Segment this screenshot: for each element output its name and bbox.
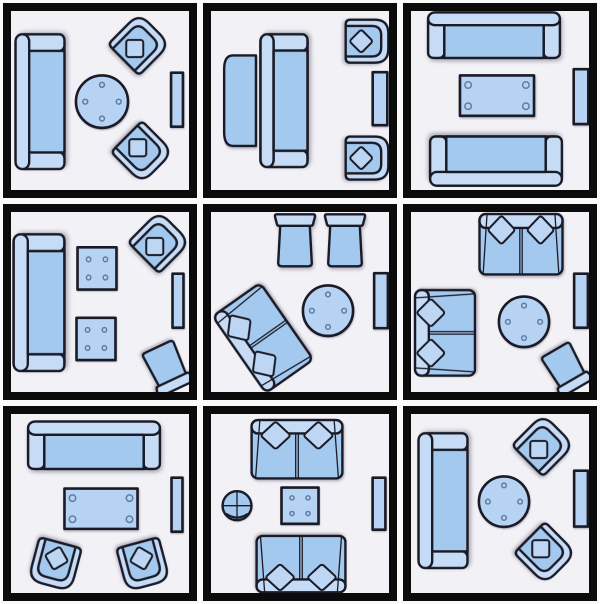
roundtable (303, 286, 353, 337)
room-cell-5 (203, 204, 397, 399)
loveseat (213, 283, 314, 391)
sqtable (281, 487, 318, 523)
sidetable (374, 274, 388, 329)
sofa (16, 34, 65, 169)
room-5-layout (211, 212, 389, 391)
room-cell-6 (403, 204, 597, 399)
room-5-floor (211, 212, 389, 391)
roundtable (76, 75, 128, 127)
armchair (346, 20, 389, 63)
room-cell-1 (3, 3, 197, 198)
sofa (428, 12, 560, 57)
room-2-layout (211, 11, 389, 190)
room-2-floor (211, 11, 389, 190)
sofa (28, 421, 160, 468)
room-7-floor (11, 414, 189, 593)
loveseat (480, 214, 563, 274)
armchair (128, 212, 189, 273)
room-3-layout (411, 11, 589, 190)
sidetable (172, 477, 183, 531)
recttable (460, 75, 534, 115)
sofa (430, 136, 562, 185)
room-3-floor (411, 11, 589, 190)
room-1-layout (11, 11, 189, 190)
room-cell-9 (403, 406, 597, 601)
loveseat (257, 536, 346, 592)
room-1-floor (11, 11, 189, 190)
sidetable (574, 470, 588, 526)
pouf (223, 491, 252, 520)
sidetable (173, 274, 184, 328)
chair (275, 215, 315, 267)
console (224, 55, 256, 145)
loveseat (252, 420, 343, 478)
sofa (14, 235, 65, 372)
room-6-floor (411, 212, 589, 391)
room-cell-8 (203, 406, 397, 601)
sqtable (77, 318, 116, 360)
armchair (111, 121, 173, 183)
room-4-layout (11, 212, 189, 391)
roundtable (499, 297, 549, 348)
chair (325, 215, 365, 267)
room-cell-7 (3, 406, 197, 601)
room-6-layout (411, 212, 589, 391)
recttable (64, 488, 137, 528)
room-9-layout (411, 414, 589, 593)
armchair (108, 13, 170, 75)
room-8-floor (211, 414, 389, 593)
room-9-floor (411, 414, 589, 593)
room-4-floor (11, 212, 189, 391)
chair (139, 339, 189, 392)
room-7-layout (11, 414, 189, 593)
room-cell-2 (203, 3, 397, 198)
sqtable (78, 248, 117, 290)
armchair (512, 414, 574, 476)
sofa (261, 34, 308, 167)
loveseat (415, 290, 475, 376)
chair (538, 341, 589, 392)
armchair (28, 537, 81, 591)
room-cell-4 (3, 204, 197, 399)
sidetable (574, 69, 589, 124)
armchair (514, 522, 576, 584)
sidetable (574, 274, 588, 328)
armchair (116, 537, 169, 591)
armchair (346, 137, 389, 180)
sidetable (171, 73, 183, 127)
room-8-layout (211, 414, 389, 593)
sidetable (373, 477, 386, 529)
furniture-arrangement-grid (0, 0, 600, 604)
sofa (419, 433, 468, 568)
room-cell-3 (403, 3, 597, 198)
roundtable (479, 476, 529, 527)
sidetable (373, 72, 388, 125)
